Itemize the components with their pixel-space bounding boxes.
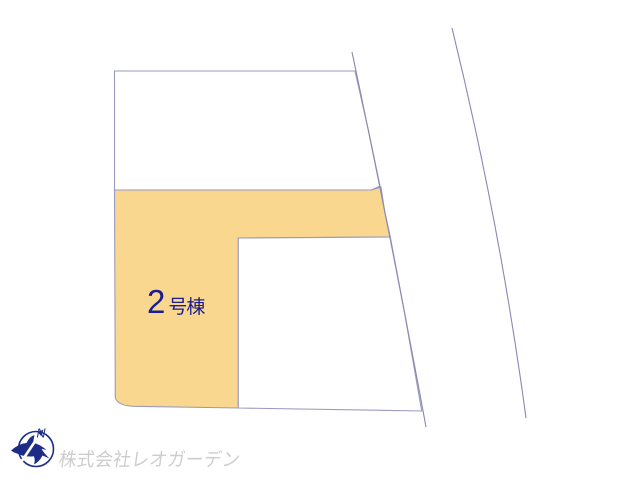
plot-map-canvas: N 2号棟 株式会社レオガーデン xyxy=(0,0,640,480)
parcel-label-suffix: 号棟 xyxy=(168,297,204,318)
parcel-label-number: 2 xyxy=(147,283,165,320)
compass-north-label: N xyxy=(37,427,47,441)
company-watermark: 株式会社レオガーデン xyxy=(57,449,242,473)
parcel-upper xyxy=(115,71,381,190)
road-edge-right xyxy=(452,28,526,418)
parcel-label: 2号棟 xyxy=(147,285,204,318)
site-plan-drawing: N xyxy=(0,0,640,480)
parcel-inner xyxy=(238,237,421,411)
compass: N xyxy=(11,427,54,467)
